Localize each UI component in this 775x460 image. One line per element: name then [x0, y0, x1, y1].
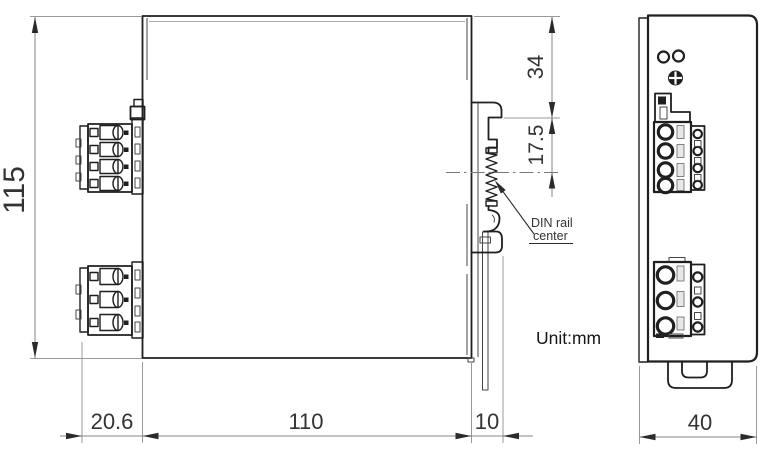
din-spring: [486, 148, 497, 206]
dim-40-label: 40: [688, 410, 712, 435]
adjustment-screw: [668, 71, 683, 86]
side-lower-terminal: [76, 262, 143, 338]
side-view: DIN rail center: [76, 16, 573, 390]
screw-terminal: [657, 267, 673, 283]
dim-115-label: 115: [0, 166, 31, 214]
front-lower-terminal: [654, 258, 705, 339]
din-rail-label-line2: center: [533, 229, 568, 243]
dim-10: 10: [472, 256, 534, 443]
dim-17-5: 17.5: [525, 118, 555, 197]
screw-terminal: [658, 144, 672, 158]
dim-20-6-label: 20.6: [91, 409, 134, 434]
front-upper-terminal: [654, 94, 705, 193]
side-upper-terminal-rows: [90, 126, 129, 191]
din-bracket-lower: [472, 206, 503, 253]
front-din-clip: [668, 362, 732, 389]
led-indicator-2: [673, 51, 684, 62]
front-side-flange: [639, 18, 648, 362]
dim-10-label: 10: [475, 409, 499, 434]
dim-20-6: 20.6: [60, 342, 143, 443]
screw-terminal: [657, 318, 673, 334]
side-upper-terminal: [76, 118, 143, 194]
dim-110: 110: [143, 362, 472, 443]
technical-drawing: DIN rail center: [0, 0, 775, 460]
din-rail-bar: [480, 232, 491, 390]
screw-terminal: [658, 163, 672, 177]
dim-34-label: 34: [523, 55, 548, 79]
din-bracket-upper: [472, 103, 502, 358]
dim-110-label: 110: [288, 409, 323, 434]
screw-terminal: [658, 125, 672, 139]
dimensions: 115 34 17.5 20.6: [0, 17, 757, 445]
side-lower-terminal-rows: [90, 269, 129, 331]
screw-terminal: [657, 292, 673, 308]
front-view: [639, 16, 757, 389]
technical-drawing-page: DIN rail center: [0, 0, 775, 460]
led-indicator-1: [658, 52, 669, 63]
din-rail-label-line1: DIN rail: [531, 216, 573, 230]
side-body-outline: [143, 16, 472, 358]
screw-terminal: [658, 178, 672, 192]
dim-17-5-label: 17.5: [525, 125, 548, 166]
unit-label: Unit:mm: [536, 328, 601, 348]
